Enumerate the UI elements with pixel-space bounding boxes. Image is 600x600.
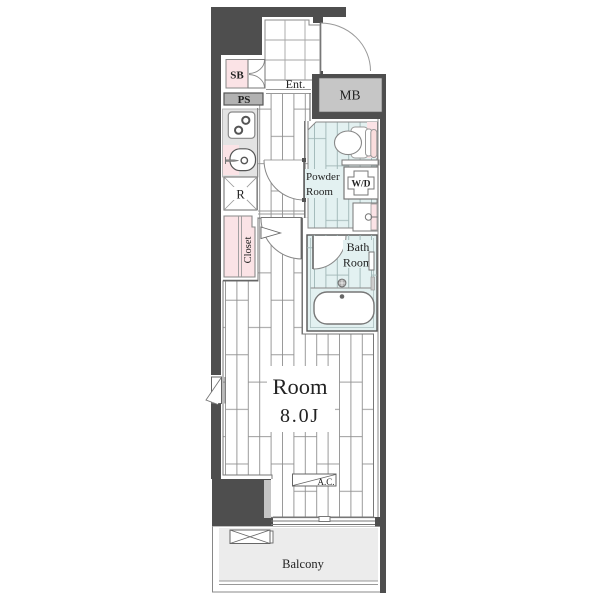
svg-text:Closet: Closet xyxy=(243,237,254,264)
svg-text:Room: Room xyxy=(306,186,333,198)
svg-text:Ent.: Ent. xyxy=(286,77,306,91)
svg-text:Room: Room xyxy=(272,374,328,399)
svg-text:W/D: W/D xyxy=(352,180,371,190)
svg-text:Powder: Powder xyxy=(306,171,340,183)
svg-text:PS: PS xyxy=(238,94,251,106)
svg-text:8.0J: 8.0J xyxy=(280,405,320,427)
svg-text:A.C.: A.C. xyxy=(317,477,334,487)
svg-text:SB: SB xyxy=(230,70,244,82)
svg-text:MB: MB xyxy=(339,88,360,103)
svg-text:Balcony: Balcony xyxy=(282,557,324,571)
svg-text:Room: Room xyxy=(343,256,373,270)
svg-text:R: R xyxy=(236,188,245,202)
svg-text:Bath: Bath xyxy=(347,240,370,254)
